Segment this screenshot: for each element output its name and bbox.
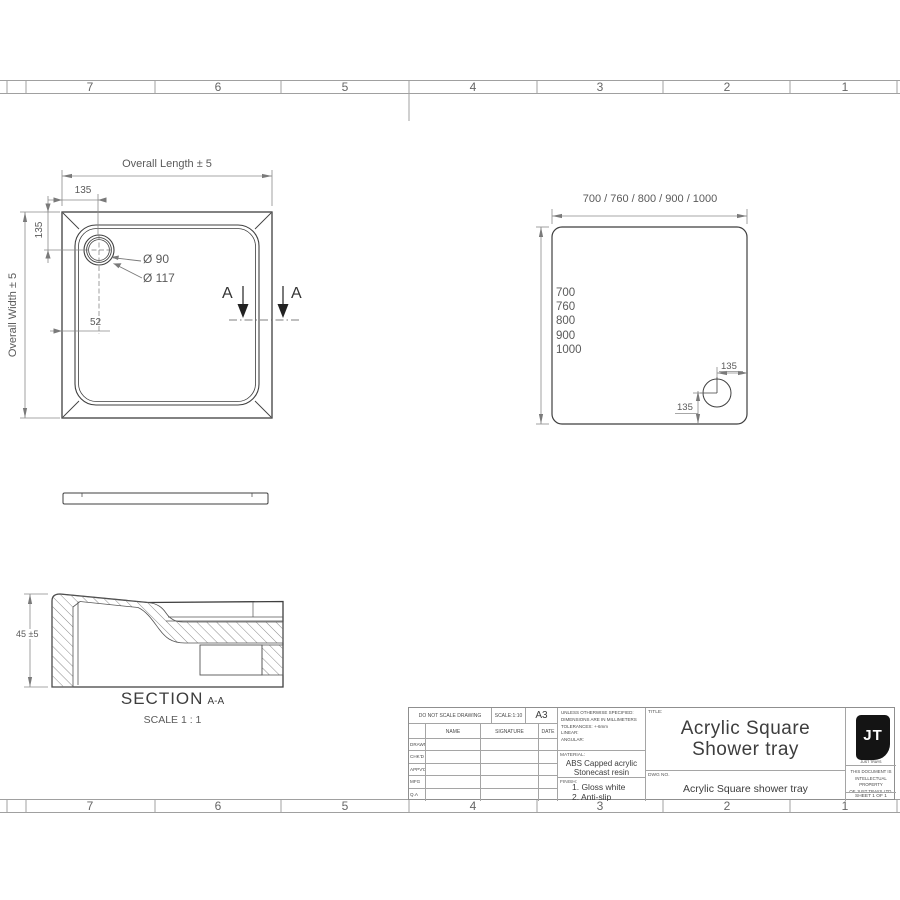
size-option: 1000 [556,343,582,357]
ruler-bottom-5: 5 [325,799,365,813]
row-drawn: DRAWN [409,739,426,751]
dim-section-height: 45 ±5 [15,629,39,639]
cell-empty [481,739,539,751]
col-date: DATE [539,724,558,739]
ruler-bottom-6: 6 [198,799,238,813]
material-line1: ABS Capped acrylic [558,759,645,768]
property-line: INTELLECTUAL PROPERTY [846,776,896,789]
finish-label: FINISH: [560,780,577,785]
cell-empty [426,751,481,763]
side-view-linework [63,493,268,504]
ruler-top-3: 3 [580,80,620,94]
dim-offset-top: 135 [69,185,97,196]
dim-drain-inner: Ø 90 [143,252,169,266]
row-mfg: MFG [409,776,426,788]
section-title-word: SECTION [121,689,204,708]
ruler-bottom-7: 7 [70,799,110,813]
do-not-scale-note: DO NOT SCALE DRAWING [409,708,492,724]
size-option: 760 [556,300,582,314]
ruler-top-6: 6 [198,80,238,94]
spec-notes: UNLESS OTHERWISE SPECIFIED: DIMENSIONS A… [558,708,646,751]
size-options-dim: 700 / 760 / 800 / 900 / 1000 [560,193,740,205]
spec-line: ANGULAR: [561,737,642,744]
cell-empty [426,789,481,801]
ruler-top-5: 5 [325,80,365,94]
drawing-title-line2: Shower tray [646,739,845,760]
material-cell: MATERIAL: ABS Capped acrylic Stonecast r… [558,751,646,778]
ruler-top-7: 7 [70,80,110,94]
size-option: 900 [556,329,582,343]
spec-line: UNLESS OTHERWISE SPECIFIED: [561,710,642,717]
material-label: MATERIAL: [560,753,585,758]
approval-corner-cell [409,724,426,739]
drawing-sheet: 7 6 5 4 3 2 1 7 6 5 4 3 2 1 Overall Leng… [0,0,900,900]
spec-line: LINEAR: [561,730,642,737]
dim-wall: 52 [90,317,101,328]
property-line: THIS DOCUMENT IS [846,769,896,776]
cell-empty [481,776,539,788]
spec-line: TOLERANCES: +-6mm [561,724,642,731]
row-chkd: CHK'D [409,751,426,763]
section-title: SECTIONA-A [105,689,240,709]
spec-line: DIMENSIONS ARE IN MILLIMETERS [561,717,642,724]
cell-empty [539,764,558,776]
cell-empty [539,776,558,788]
dwg-cell: DWG NO. Acrylic Square shower tray [646,771,846,801]
logo-cell: JT JUST TRAYS [846,708,896,766]
size-option: 800 [556,314,582,328]
dwg-label: DWG NO. [648,773,670,778]
title-cell: TITLE: Acrylic Square Shower tray [646,708,846,771]
ruler-top-4: 4 [453,80,493,94]
dim-offset-left: 135 [34,216,46,244]
finish-cell: FINISH: 1. Gloss white 2. Anti-slip avai… [558,778,646,801]
drawing-title-line1: Acrylic Square [646,718,845,739]
cell-empty [426,739,481,751]
section-arrow-label-left: A [222,285,233,303]
cell-empty [426,764,481,776]
col-signature: SIGNATURE [481,724,539,739]
jt-logo-tagline: JUST TRAYS [846,760,896,764]
dim-overall-width: Overall Width ± 5 [7,260,19,370]
ruler-top-2: 2 [707,80,747,94]
ruler-bottom-1: 1 [825,799,865,813]
material-line2: Stonecast resin [558,768,645,777]
cell-empty [539,751,558,763]
ruler-bottom-3: 3 [580,799,620,813]
paper-size: A3 [526,708,558,724]
cell-empty [481,789,539,801]
size-option: 700 [556,286,582,300]
ruler-bottom-4: 4 [453,799,493,813]
cell-empty [539,789,558,801]
dim-waste-offset-v: 135 [677,402,693,413]
cell-empty [481,764,539,776]
dim-overall-length: Overall Length ± 5 [87,158,247,170]
ruler-top-1: 1 [825,80,865,94]
title-block: DO NOT SCALE DRAWING SCALE:1:10 A3 NAME … [408,707,895,800]
row-qa: Q.A [409,789,426,801]
jt-logo-text: JT [863,727,883,744]
title-label: TITLE: [648,710,662,715]
section-arrow-label-right: A [291,285,302,303]
dwg-number: Acrylic Square shower tray [646,783,845,795]
section-view-linework [24,594,283,687]
scale-note: SCALE:1:10 [492,708,526,724]
cell-empty [481,751,539,763]
col-name: NAME [426,724,481,739]
cell-empty [426,776,481,788]
cell-empty [539,739,558,751]
sheet-number: SHEET 1 OF 1 [846,793,896,801]
ruler-bottom-2: 2 [707,799,747,813]
dim-drain-outer: Ø 117 [143,271,175,285]
section-scale: SCALE 1 : 1 [130,714,215,726]
finish-line2: 2. Anti-slip available [572,793,645,802]
jt-logo: JT [856,715,890,760]
section-title-cut: A-A [207,696,224,707]
property-note: THIS DOCUMENT IS INTELLECTUAL PROPERTY O… [846,766,896,793]
dim-waste-offset-h: 135 [721,361,737,372]
size-options-list: 700 760 800 900 1000 [556,286,582,357]
plan-view-linework [20,170,299,418]
row-appvd: APPV'D [409,764,426,776]
